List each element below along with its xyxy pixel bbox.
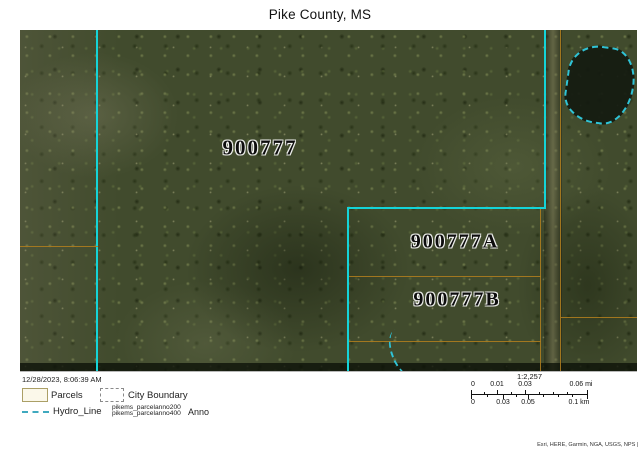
scale-mi-tick: 0 [471,381,475,388]
pond-hydro-outline [561,42,637,129]
anno-sublabel-400: pikems_parcelanno400 [112,410,181,416]
parcels-swatch-icon [22,388,48,402]
scale-km-tick: 0.05 [521,399,535,406]
scale-ratio: 1:2,257 [471,372,588,381]
parcel-line [20,246,98,247]
map-attribution: Esri, HERE, Garmin, NGA, USGS, NPS | [537,441,638,447]
scale-bar: 1:2,257 0 0.01 0.03 0.06 mi 0 0.03 0.05 … [471,372,588,408]
scale-km-tick: 0.03 [496,399,510,406]
parcel-boundary-line-notch [347,207,349,371]
map-canvas: 900777 900777A 900777B [20,30,637,372]
scale-mi-tick: 0.06 mi [570,381,593,388]
parcel-line [560,30,561,371]
parcel-boundary-line-left [96,30,98,371]
map-export-page: Pike County, MS 900777 900777A 900777B 1… [0,0,640,453]
legend-anno-label: Anno [188,407,209,417]
legend-hydro-line-label: Hydro_Line [53,406,102,417]
parcel-label-900777: 900777 [223,136,298,161]
treeline-shadow [20,363,637,371]
legend-city-boundary-label: City Boundary [128,390,188,401]
city-boundary-swatch-icon [100,388,124,402]
legend-parcels-label: Parcels [51,390,83,401]
legend-anno-sublabels: pikems_parcelanno200 pikems_parcelanno40… [112,404,181,416]
parcel-line [349,276,541,277]
parcel-label-900777A: 900777A [411,231,499,254]
scale-km-tick: 0.1 km [568,399,589,406]
parcel-line [540,209,541,371]
hydro-line-swatch-icon [22,411,49,413]
parcel-line [349,341,541,342]
export-timestamp: 12/28/2023, 8:06:39 AM [22,375,102,384]
scale-km-tick: 0 [471,399,475,406]
parcel-line [561,317,637,318]
scale-bar-line [471,394,588,395]
parcel-label-900777B: 900777B [413,289,500,312]
scale-mi-tick: 0.03 [518,381,532,388]
parcel-boundary-line-step [347,207,546,209]
scale-mi-tick: 0.01 [490,381,504,388]
page-title: Pike County, MS [0,7,640,22]
parcel-boundary-line-right [544,30,546,209]
